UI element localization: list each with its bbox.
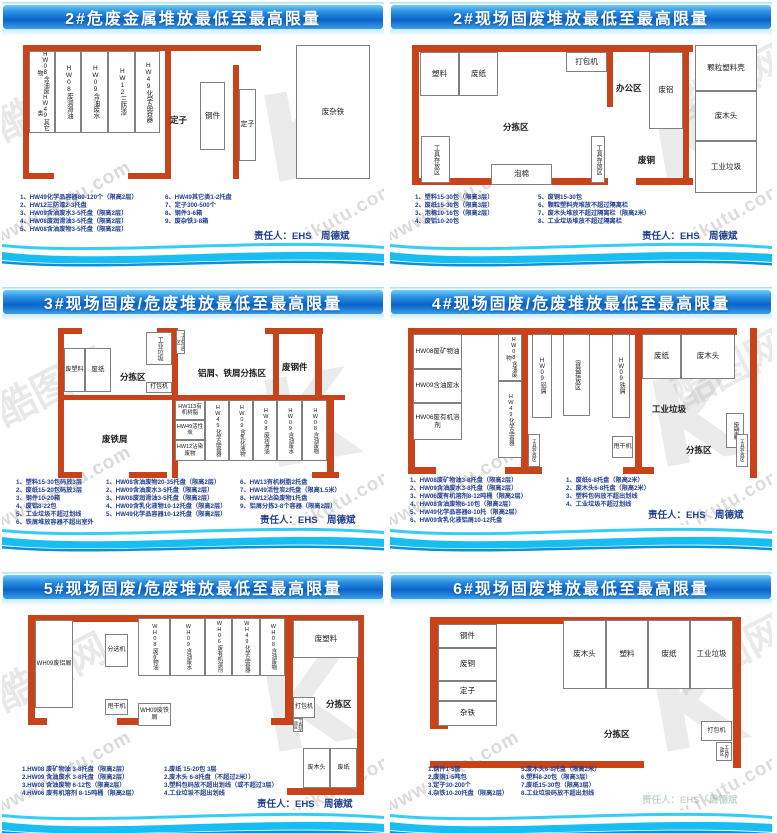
room-label: 工具存放区: [294, 719, 302, 731]
room-box: HW49化学品容器: [135, 51, 160, 133]
room-label: HW49活性炭: [176, 424, 204, 437]
panel-board-2: 2#现场固废堆放最低至最高限量 酷图网 K www.ikutu.com www.…: [390, 2, 772, 268]
room-box: 废纸: [648, 620, 690, 689]
note-line: 3、HW08废润滑油3-5托盘（限高2层）: [106, 495, 226, 503]
wall-segment: [412, 45, 693, 52]
room-box: 容器摆放区: [563, 334, 590, 416]
room-label: 杂铁: [460, 709, 475, 718]
note-line: 3、HW09含油废水3-5托盘（限高2层）: [20, 210, 138, 218]
wall-segment: [683, 52, 689, 185]
room-label: HW09铝屑: [539, 358, 545, 394]
room-box: WH06废有机溶剂: [205, 618, 232, 676]
title-underline-strip: [2, 314, 384, 321]
note-line: 3.定子30-200个: [428, 782, 508, 790]
room-box: 钢件: [200, 82, 225, 150]
area-label: 废铁屑: [102, 433, 128, 445]
note-line: 2、HW09含油废水3-5托盘（限高2层）: [106, 487, 226, 495]
room-label: 废杂铁: [322, 108, 345, 117]
room-box: HW08废矿物油: [413, 334, 462, 369]
note-line: 3、HW06废有机溶剂8-12吨桶（限高2层）: [410, 493, 527, 501]
wall-segment: [733, 617, 741, 768]
room-label: WH09废铁屑: [139, 708, 170, 722]
notes-column: 5.废木头6-8托盘（限高2米）6.塑料8-20包（限高3层）7.废纸15-30…: [521, 766, 600, 798]
room-label: HW49其它类: [36, 95, 49, 132]
responsible-line: 责任人：EHS 周德斌: [648, 507, 744, 521]
room-label: 工具存放区: [595, 145, 601, 175]
panel-title: 5#现场固废/危废堆放最低至最高限量: [44, 575, 342, 599]
panel-board-1: 2#危废金属堆放最低至最高限量 酷图网 K www.ikutu.com www.…: [2, 2, 384, 268]
notes-column: 1、HW49化学品容器80-120个（限高2层）2、HW12三防漆2-3托盘3、…: [20, 194, 138, 234]
room-box: HW08含油废物HW49其它类: [29, 51, 55, 133]
note-line: 6、颗粒塑料壳堆放不超过隔离栏: [538, 202, 650, 210]
notes-column: 1、HW08废矿物油3-8托盘（限高2层）2、HW09含油废水3-8托盘（限高2…: [410, 477, 527, 525]
room-label: WH09废铝屑: [37, 661, 72, 668]
area-label: 分拣区: [686, 444, 712, 456]
room-label: HW08废矿物油: [415, 348, 459, 355]
floor-plan-area: 酷图网 K www.ikutu.com www.ikutu.com 废塑料废纸工…: [2, 321, 384, 525]
room-label: 废木头: [573, 650, 596, 659]
note-line: 8、钢件3-6箱: [165, 210, 232, 218]
wall-segment: [327, 395, 334, 478]
room-label: 工具存放区: [176, 331, 185, 353]
panel-board-5: 5#现场固废/危废堆放最低至最高限量 酷图网 K www.ikutu.com w…: [2, 572, 384, 833]
room-box: 钢件: [438, 624, 497, 648]
room-box: 工业垃圾: [146, 332, 172, 365]
room-box: HW08废润滑油: [55, 51, 81, 133]
title-underline-strip: [2, 599, 384, 606]
room-box: 打包机: [293, 697, 315, 718]
note-line: 3.塑料包码放不超出划线（或不超过3层）: [164, 782, 278, 790]
note-line: 7、HW49活性炭2托盘（限高1.5米）: [240, 487, 341, 495]
note-line: 4.HW06 废有机溶剂 8-15吨桶（限高2层）: [22, 790, 138, 798]
room-box: HW09铁屑: [612, 334, 630, 418]
wall-segment: [287, 788, 364, 795]
notes-column: 6、HW13有机树脂2托盘7、HW49活性炭2托盘（限高1.5米）8、HW12沾…: [240, 479, 341, 511]
room-box: 泡棉: [491, 164, 552, 185]
room-label: 废纸: [654, 352, 669, 361]
room-box: WH09含油废水: [170, 618, 205, 676]
room-box: WH09废铁屑: [138, 703, 171, 726]
room-label: HW09含油废水: [91, 65, 98, 119]
room-label: 打包机: [295, 704, 313, 711]
notes-column: 1.HW08 废矿物油 3-8托盘（限高2层）2.HW09 含油废水 3-8托盘…: [22, 766, 138, 798]
room-box: WH08废矿物油: [138, 618, 170, 676]
room-label: 废塑料: [315, 635, 338, 644]
note-line: 3、钢件10-20箱: [16, 495, 94, 503]
note-line: 7.废纸15-30包（限高3层）: [521, 782, 600, 790]
note-line: 3、泡棉10-16包（限高2层）: [415, 210, 493, 218]
room-box: HW06废有机溶剂: [413, 403, 462, 440]
wave-footer: [390, 810, 772, 833]
area-label: 分拣区: [120, 371, 146, 383]
wall-segment: [430, 617, 438, 729]
note-line: 4、废铝10-20包: [415, 218, 493, 226]
room-label: 工业垃圾: [697, 650, 727, 659]
panel-title-bar: 6#现场固废堆放最低至最高限量: [391, 575, 771, 599]
room-box: 工业垃圾: [690, 620, 733, 689]
room-label: 打包机: [707, 728, 725, 735]
note-line: 1、HW08废矿物油3-8托盘（限高2层）: [410, 477, 527, 485]
wall-segment: [128, 173, 166, 179]
room-box: 废木头: [695, 91, 757, 141]
room-label: WH08含油废物: [270, 624, 276, 670]
room-label: HW113有机树脂: [176, 404, 204, 417]
room-box: 废塑料: [293, 620, 359, 658]
room-box: HW09含油废水: [81, 51, 108, 133]
room-box: 废纸: [85, 348, 111, 392]
room-box: HW08废润滑油: [253, 400, 277, 461]
note-line: 5、废铜15-30包: [538, 194, 650, 202]
area-label: 废铜: [638, 154, 655, 166]
room-box: 工具存放区: [716, 742, 732, 761]
room-label: HW06废有机溶剂: [414, 414, 461, 429]
wall-segment: [408, 467, 436, 474]
panel-title: 4#现场固废/危废堆放最低至最高限量: [432, 290, 730, 314]
note-line: 1.HW08 废矿物油 3-8托盘（限高2层）: [22, 766, 138, 774]
note-line: 6、HW49其它类1-2托盘: [165, 194, 232, 202]
wall-segment: [23, 173, 54, 179]
room-box: HW09铝屑: [532, 334, 552, 418]
panel-title: 2#危废金属堆放最低至最高限量: [65, 5, 321, 29]
room-box: 工具存放区: [528, 434, 540, 467]
room-label: 废铝: [659, 86, 674, 95]
room-label: 颗粒塑料壳: [707, 64, 745, 73]
floor-plan-area: 酷图网 K www.ikutu.com www.ikutu.com 塑料废纸打包…: [390, 36, 772, 240]
room-label: 废纸: [92, 366, 105, 373]
floor-plan-area: 酷图网 K www.ikutu.com www.ikutu.com HW08废矿…: [390, 321, 772, 525]
note-line: 7、定子300-500个: [165, 202, 232, 210]
note-line: 5.废木头6-8托盘（限高2米）: [521, 766, 600, 774]
area-label: 铝屑、铁屑分拣区: [198, 367, 266, 379]
wave-footer: [2, 810, 384, 833]
room-box: WH49化学品容器: [232, 618, 260, 676]
notes-column: 6、HW49其它类1-2托盘7、定子300-500个8、钢件3-6箱9、废杂铁3…: [165, 194, 232, 226]
wall-segment: [129, 472, 167, 478]
room-label: 废塑料: [65, 367, 83, 374]
panel-title-bar: 2#现场固废堆放最低至最高限量: [391, 5, 771, 29]
notes-column: 1.钢件1-5筐2.废铜1-5吨包3.定子30-200个4.杂铁10-20托盘（…: [428, 766, 508, 798]
area-label: 定子: [170, 114, 187, 126]
note-line: 1、HW49化学品容器80-120个（限高2层）: [20, 194, 138, 202]
note-line: 2.HW09 含油废水 3-8托盘（限高2层）: [22, 774, 138, 782]
responsible-line: 责任人：EHS 周德斌: [642, 228, 738, 240]
room-box: 废杂铁: [296, 45, 370, 179]
room-label: 分选机: [107, 647, 125, 654]
room-box: WH09废铝屑: [35, 620, 73, 708]
room-label: HW49化学品容器: [214, 405, 220, 457]
room-label: 废纸: [471, 70, 486, 79]
note-line: 9、铝屑分拣3-8个容器（限高2层）: [240, 503, 341, 511]
room-box: 废铜: [438, 648, 497, 681]
room-box: 打包机: [701, 721, 732, 741]
room-label: HW08含油废物: [504, 335, 516, 380]
note-line: 9、废杂铁3-8箱: [165, 218, 232, 226]
room-box: 废木头: [303, 748, 330, 788]
wall-segment: [505, 467, 542, 474]
room-label: 工具存放区: [719, 743, 728, 760]
note-line: 2、废纸15-20包码放3层: [16, 487, 94, 495]
note-line: 6、铁屑堆放容器不超出室外: [16, 519, 94, 525]
notes-column: 1、塑料15-30包码放3层2、废纸15-20包码放3层3、钢件10-20箱4、…: [16, 479, 94, 525]
wave-footer: [390, 240, 772, 268]
note-line: 2、废木头6-8托盘（限高2米）: [566, 485, 650, 493]
wall-segment: [271, 718, 293, 725]
room-label: 塑料: [432, 70, 447, 79]
room-label: 泡棉: [514, 170, 529, 179]
room-label: WH06废有机溶剂: [216, 621, 222, 673]
note-line: 4.杂铁10-20托盘（限高2层）: [428, 790, 508, 798]
room-box: 废木头: [563, 620, 606, 689]
responsible-line: 责任人：EHS 周德斌: [257, 796, 353, 810]
wall-segment: [623, 467, 654, 474]
area-label: 办公区: [616, 82, 642, 94]
wall-segment: [315, 328, 322, 395]
room-box: 塑料: [606, 620, 648, 689]
room-box: 颗粒塑料壳: [695, 45, 757, 91]
floor-plan-area: 酷图网 K www.ikutu.com www.ikutu.com WH09废铝…: [2, 606, 384, 810]
wall-segment: [28, 615, 35, 725]
room-box: 废纸: [459, 52, 498, 96]
room-label: 废纸: [337, 765, 349, 772]
note-line: 2、HW12三防漆2-3托盘: [20, 202, 138, 210]
room-box: 打包机: [146, 382, 172, 393]
panel-cell-4: 4#现场固废/危废堆放最低至最高限量 酷图网 K www.ikutu.com w…: [388, 285, 777, 570]
room-label: HW08废润滑油: [262, 408, 268, 454]
room-label: 钢件: [460, 632, 475, 641]
wave-footer: [390, 525, 772, 553]
area-label: 废钢件: [282, 361, 308, 373]
notes-column: 5、废铜15-30包6、颗粒塑料壳堆放不超过隔离栏7、废木头堆放不超过隔离栏（限…: [538, 194, 650, 226]
note-line: 3、塑料包码放不超出划线: [566, 493, 650, 501]
title-underline-strip: [390, 29, 772, 36]
panel-board-3: 3#现场固废/危废堆放最低至最高限量 酷图网 K www.ikutu.com w…: [2, 287, 384, 553]
room-box: HW09含油废水: [277, 400, 302, 461]
title-underline-strip: [390, 599, 772, 606]
panel-board-6: 6#现场固废堆放最低至最高限量 酷图网 K www.ikutu.com www.…: [390, 572, 772, 833]
room-label: HW08含油废物: [36, 52, 49, 95]
room-label: 废木头: [697, 352, 720, 361]
floor-plan-area: 酷图网 K www.ikutu.com www.ikutu.com 钢件废铜定子…: [390, 606, 772, 810]
room-label: 废木头: [715, 112, 738, 121]
notes-column: 1.废纸 15-20包 3层2.废木头 6-8托盘（不超过2米））3.塑料包码放…: [164, 766, 278, 798]
panel-title-bar: 2#危废金属堆放最低至最高限量: [3, 5, 383, 29]
note-line: 4、工业垃圾不超过划线: [566, 501, 650, 509]
wall-segment: [607, 52, 613, 107]
room-box: HW12三防漆: [108, 51, 135, 133]
wave-footer: [2, 240, 384, 268]
room-label: 工具存放区: [532, 439, 537, 462]
responsible-line: 责任人：EHS 周德斌: [260, 512, 356, 525]
room-label: 废木头: [307, 765, 325, 772]
room-label: HW12三防漆: [118, 68, 125, 116]
note-line: 1、HW08含油废物20-35托盘（限高2层）: [106, 479, 226, 487]
panel-title-bar: 3#现场固废/危废堆放最低至最高限量: [3, 290, 383, 314]
poster-grid: 2#危废金属堆放最低至最高限量 酷图网 K www.ikutu.com www.…: [0, 0, 777, 833]
responsible-line: 责任人：EHS 周德斌: [254, 228, 350, 240]
room-label: 废纸: [662, 650, 677, 659]
note-line: 5、HW08含油废物3-5托盘（限高2层）: [20, 226, 138, 234]
room-box: HW49活性炭: [175, 420, 205, 440]
wall-segment: [521, 328, 528, 474]
room-box: HW09含乳化液物: [229, 400, 253, 461]
wall-segment: [412, 45, 419, 185]
room-label: 定子: [460, 687, 475, 696]
panel-title: 3#现场固废/危废堆放最低至最高限量: [44, 290, 342, 314]
room-label: HW08废润滑油: [65, 65, 72, 119]
panel-title-bar: 5#现场固废/危废堆放最低至最高限量: [3, 575, 383, 599]
room-box: 打包机: [566, 52, 607, 72]
wave-footer: [2, 525, 384, 553]
room-box: HW09含油废水: [413, 369, 462, 403]
room-label: HW49化学品容器: [507, 394, 513, 446]
wall-segment: [750, 328, 757, 478]
room-box: 工具存放区: [293, 718, 303, 732]
room-label: WH08废矿物油: [151, 624, 157, 670]
panel-title-bar: 4#现场固废/危废堆放最低至最高限量: [391, 290, 771, 314]
panel-cell-2: 2#现场固废堆放最低至最高限量 酷图网 K www.ikutu.com www.…: [388, 0, 777, 285]
note-line: 6、HW13有机树脂2托盘: [240, 479, 341, 487]
responsible-line: 责任人：EHS 周德斌: [642, 792, 738, 806]
room-box: 废塑料: [64, 348, 85, 392]
area-label: 工业垃圾: [652, 403, 686, 415]
panel-board-4: 4#现场固废/危废堆放最低至最高限量 酷图网 K www.ikutu.com w…: [390, 287, 772, 553]
notes-column: 1、废纸6-8托盘（限高2米）2、废木头6-8托盘（限高2米）3、塑料包码放不超…: [566, 477, 650, 509]
room-label: 塑料: [620, 650, 635, 659]
room-box: 废纸: [642, 334, 681, 379]
floor-plan-area: 酷图网 K www.ikutu.com www.ikutu.com HW08含油…: [2, 36, 384, 240]
room-label: HW12沾染废物: [176, 444, 204, 457]
area-label: 分拣区: [503, 121, 529, 133]
room-label: 工业垃圾: [711, 163, 741, 172]
note-line: 2.废铜1-5吨包: [428, 774, 508, 782]
notes-column: 1、塑料15-30包（限高3层）2、废纸15-30包（限高3层）3、泡棉10-1…: [415, 194, 493, 226]
room-label: WH49化学品容器: [243, 621, 249, 673]
room-box: HW12沾染废物: [175, 440, 205, 461]
note-line: 1.废纸 15-20包 3层: [164, 766, 278, 774]
note-line: 5、HW49化学品容器10-12托盘（限高2层）: [106, 511, 226, 519]
note-line: 1、塑料15-30包码放3层: [16, 479, 94, 487]
room-box: HW08含油废物: [498, 334, 522, 381]
note-line: 1、塑料15-30包（限高3层）: [415, 194, 493, 202]
room-box: 废铝: [649, 52, 683, 129]
room-box: HW49化学品容器: [205, 400, 229, 461]
room-label: 钢件: [205, 112, 220, 121]
note-line: 6.塑料8-20包（限高3层）: [521, 774, 600, 782]
note-line: 1.钢件1-5筐: [428, 766, 508, 774]
room-label: 打包机: [150, 384, 168, 391]
room-box: 塑料: [420, 52, 459, 96]
wall-segment: [28, 718, 47, 725]
room-label: HW09铁屑: [618, 358, 624, 394]
room-label: 工具存放区: [740, 439, 745, 462]
note-line: 2、HW09含油废水3-8托盘（限高2层）: [410, 485, 527, 493]
room-box: 甩干机: [105, 699, 128, 715]
room-box: 工具存放区: [176, 330, 185, 354]
panel-title: 2#现场固废堆放最低至最高限量: [453, 5, 709, 29]
note-line: 8、HW12沾染废物1托盘: [240, 495, 341, 503]
wall-segment: [285, 615, 293, 725]
wall-segment: [312, 472, 339, 478]
title-underline-strip: [2, 29, 384, 36]
room-label: HW09含油废水: [415, 382, 459, 389]
area-label: 分拣区: [604, 728, 630, 740]
panel-cell-5: 5#现场固废/危废堆放最低至最高限量 酷图网 K www.ikutu.com w…: [0, 570, 388, 833]
room-label: HW09含乳化液物: [238, 405, 244, 457]
room-label: WH09含油废水: [185, 624, 191, 670]
room-label: 定子: [241, 121, 255, 129]
room-box: 定子: [239, 89, 256, 161]
room-box: 工业垃圾: [695, 141, 757, 193]
room-box: 废纸: [330, 748, 357, 788]
note-line: 8.工业垃圾码放不超出划线: [521, 790, 600, 798]
note-line: 7、废木头堆放不超过隔离栏（限高2米）: [538, 210, 650, 218]
room-box: HW08含油废物: [302, 400, 327, 461]
room-label: 打包机: [575, 58, 598, 67]
room-box: 甩干机: [612, 436, 633, 458]
title-underline-strip: [390, 314, 772, 321]
note-line: 2、废纸15-30包（限高3层）: [415, 202, 493, 210]
room-label: 废铜: [460, 660, 475, 669]
panel-cell-3: 3#现场固废/危废堆放最低至最高限量 酷图网 K www.ikutu.com w…: [0, 285, 388, 570]
panel-cell-1: 2#危废金属堆放最低至最高限量 酷图网 K www.ikutu.com www.…: [0, 0, 388, 285]
panel-title: 6#现场固废堆放最低至最高限量: [453, 575, 709, 599]
room-label: 甩干机: [107, 704, 125, 711]
room-label: 工业垃圾: [156, 337, 162, 361]
room-box: 定子: [438, 681, 497, 701]
room-box: 废木头: [681, 334, 735, 379]
room-box: HW113有机树脂: [175, 400, 205, 420]
room-label: HW09含油废水: [287, 408, 293, 454]
wall-segment: [635, 328, 642, 474]
note-line: 1、废纸6-8托盘（限高2米）: [566, 477, 650, 485]
note-line: 6、HW09含乳化液铝屑10-12托盘: [410, 517, 527, 525]
panel-cell-6: 6#现场固废堆放最低至最高限量 酷图网 K www.ikutu.com www.…: [388, 570, 777, 833]
notes-column: 1、HW08含油废物20-35托盘（限高2层）2、HW09含油废水3-5托盘（限…: [106, 479, 226, 519]
room-label: 工具存放区: [432, 145, 438, 175]
room-label: 甩干机: [613, 444, 631, 451]
room-box: 工具存放区: [591, 136, 605, 183]
note-line: 8、工业垃圾堆放不超过隔离栏: [538, 218, 650, 226]
room-box: 工具存放区: [421, 136, 450, 183]
note-line: 2.废木头 6-8托盘（不超过2米））: [164, 774, 278, 782]
room-box: 工具存放区: [736, 434, 748, 467]
wall-segment: [273, 328, 279, 400]
note-line: 3.HW08 含油废物 6-12包（限高2层）: [22, 782, 138, 790]
room-box: 杂铁: [438, 701, 497, 726]
room-label: HW08含油废物: [312, 408, 318, 454]
room-label: 容器摆放区: [573, 360, 579, 390]
room-box: 分选机: [105, 634, 128, 667]
area-label: 分拣区: [326, 698, 352, 710]
room-box: HW49化学品容器: [498, 381, 522, 458]
room-label: HW49化学品容器: [144, 62, 151, 123]
room-box: WH08含油废物: [260, 618, 285, 676]
wall-segment: [58, 472, 82, 478]
